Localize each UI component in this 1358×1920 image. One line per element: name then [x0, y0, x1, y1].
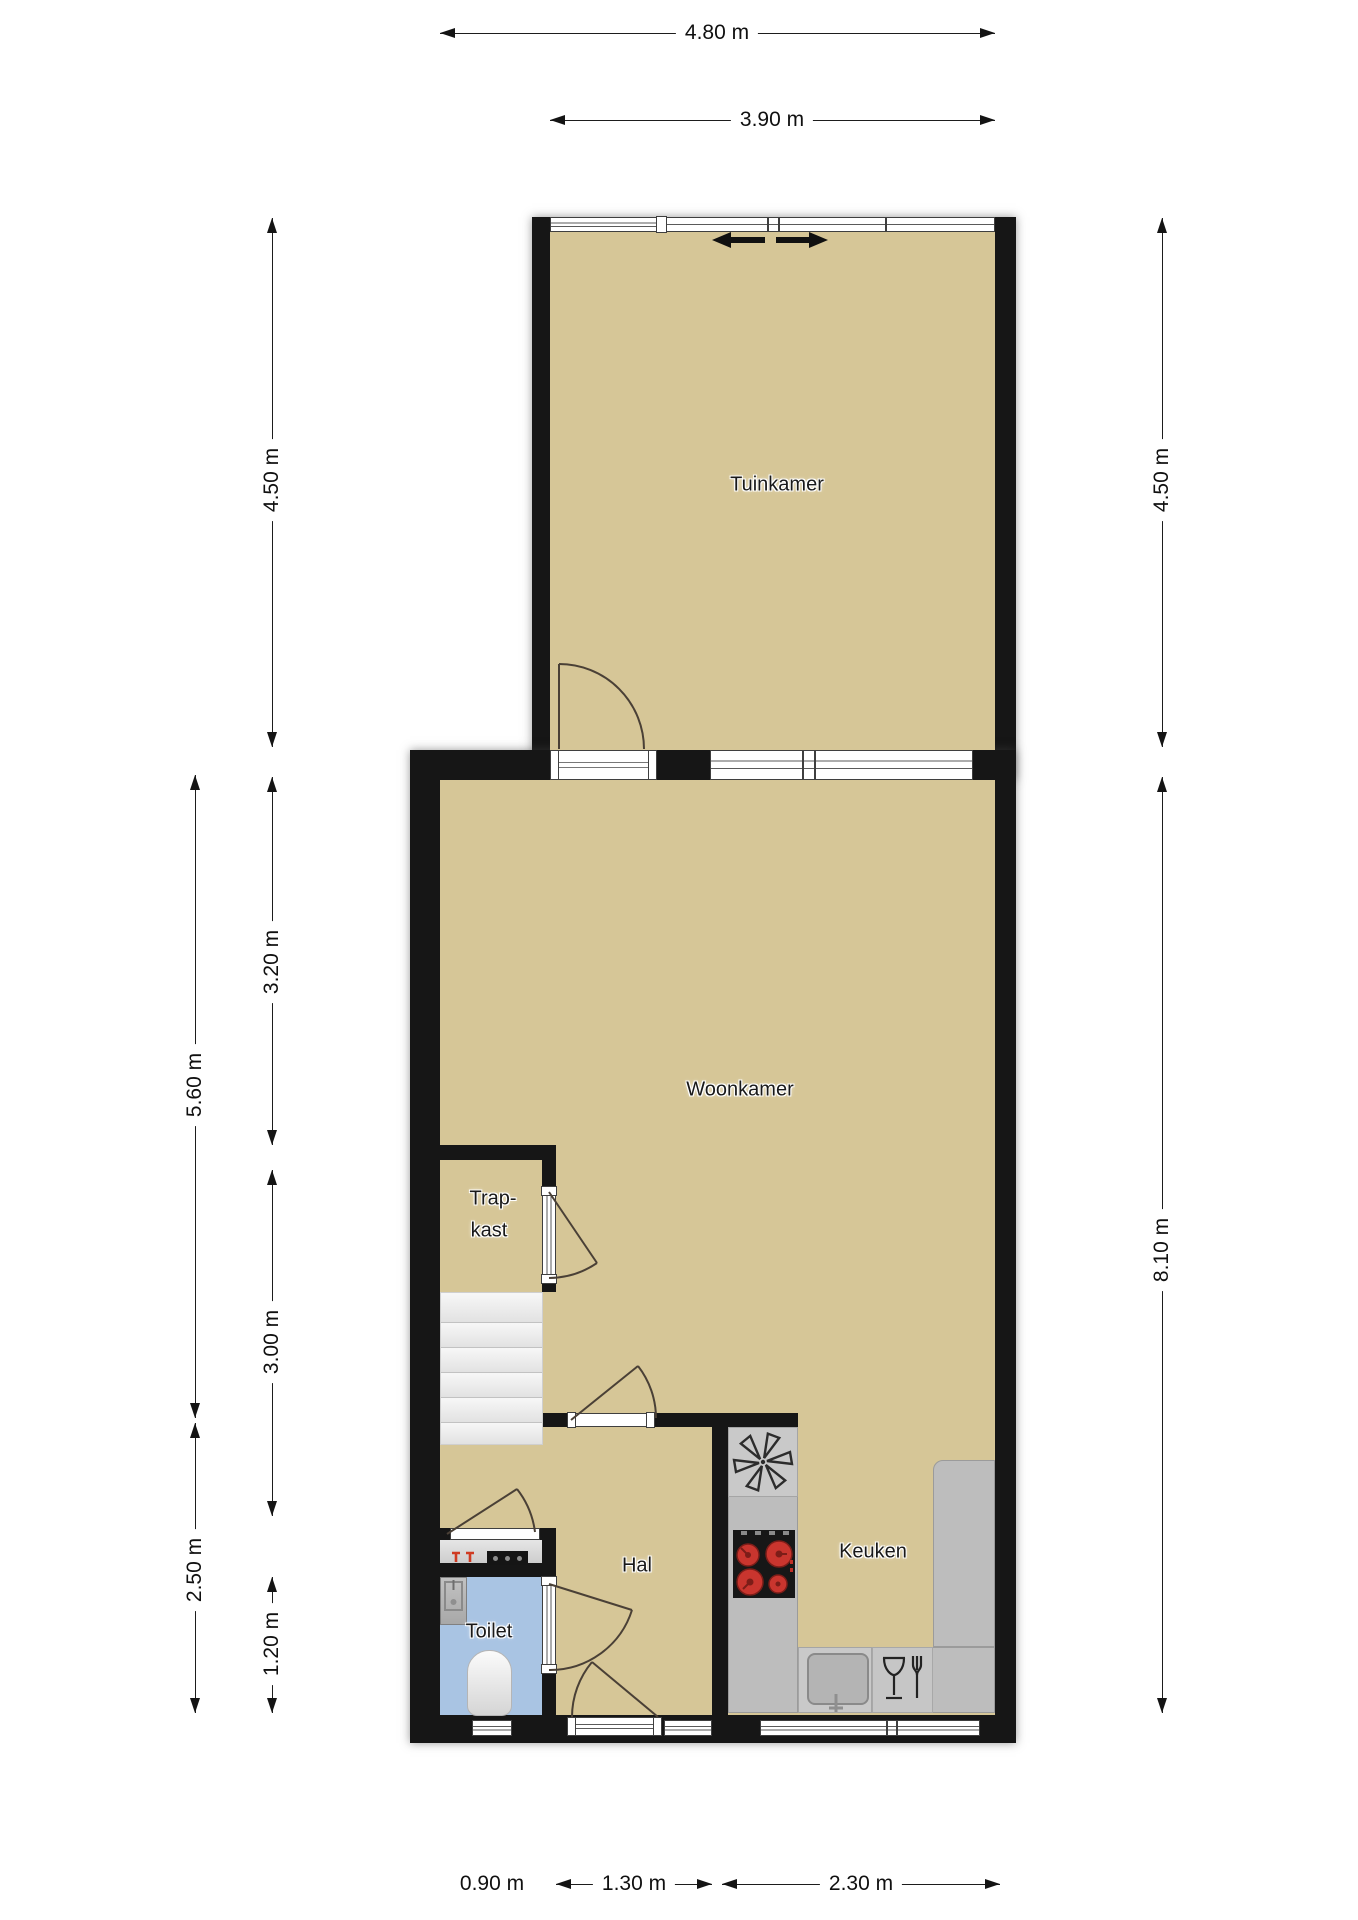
tuinkamer-door-swing — [559, 664, 644, 749]
room-label-trapkast-line1: Trap- — [469, 1188, 516, 1211]
room-label-woonkamer: Woonkamer — [686, 1079, 793, 1102]
room-label-trapkast-line2: kast — [471, 1220, 508, 1243]
room-label-toilet: Toilet — [466, 1621, 513, 1644]
room-label-tuinkamer: Tuinkamer — [730, 474, 824, 497]
toilet-door-swing — [549, 1584, 632, 1670]
woonkamer-hal-door-swing — [571, 1366, 656, 1420]
door-swings-overlay — [0, 0, 1358, 1920]
trapkast-door-swing — [549, 1192, 597, 1278]
room-label-hal: Hal — [622, 1555, 652, 1578]
front-door-swing — [572, 1662, 658, 1717]
cupboard-door-swing — [447, 1489, 535, 1534]
floorplan-canvas: Tuinkamer Woonkamer Trap- kast Hal Toile… — [0, 0, 1358, 1920]
room-label-keuken: Keuken — [839, 1541, 907, 1564]
